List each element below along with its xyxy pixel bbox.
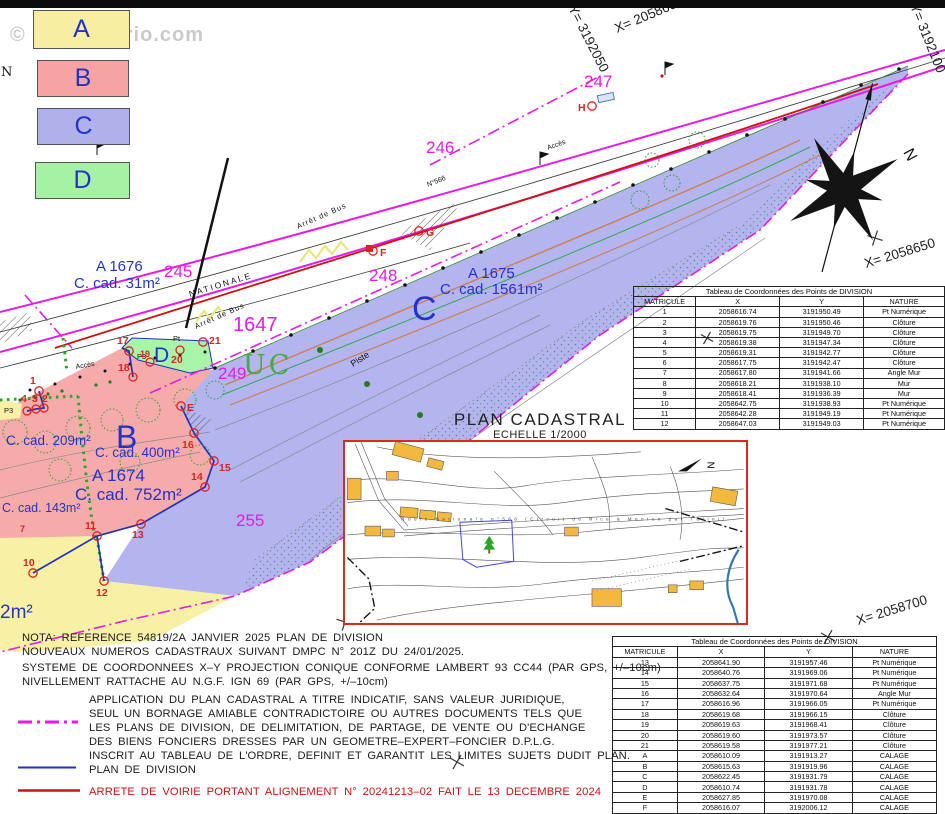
parcel-area: C. cad. 400m² <box>95 445 180 460</box>
table-cell: 2058642.75 <box>696 399 780 409</box>
table-cell: 2058610.74 <box>677 782 764 792</box>
table-cell: 2058610.09 <box>677 751 764 761</box>
table-cell: CALAGE <box>852 772 936 782</box>
table-cell: 8 <box>634 378 696 388</box>
svg-text:15: 15 <box>219 462 231 474</box>
parcel-area: C. cad. 752m² <box>75 485 182 504</box>
parcel-area: C. cad. 209m² <box>6 433 91 448</box>
table-cell: 3191947.34 <box>780 337 864 347</box>
table-cell: 3191949.70 <box>780 327 864 337</box>
svg-text:18: 18 <box>118 362 130 374</box>
table-cell: B <box>613 761 678 771</box>
lot-number: 247 <box>584 72 612 91</box>
table-cell: Mur <box>864 378 945 388</box>
note-app3: LES PLANS DE DIVISION, DE DELIMITATION, … <box>89 722 585 734</box>
lot-number: 248 <box>369 266 397 285</box>
table-row: 112058642.283191949.19Pt Numérique <box>634 409 945 419</box>
table-cell: Clôture <box>864 358 945 368</box>
table-cell: 3191969.06 <box>765 668 852 678</box>
table-cell: 2058637.75 <box>677 678 764 688</box>
p3-label: P3 <box>4 406 13 415</box>
table-cell: C <box>613 772 678 782</box>
table-cell: 16 <box>613 688 678 698</box>
table-row: 122058647.033191949.03Pt Numérique <box>634 419 945 429</box>
svg-text:20: 20 <box>171 354 183 366</box>
table-row: 22058619.763191950.46Clôture <box>634 317 945 327</box>
table-cell: Mur <box>864 388 945 398</box>
lot-number: 246 <box>426 138 454 157</box>
table-cell: 2058622.45 <box>677 772 764 782</box>
svg-text:14: 14 <box>191 471 203 483</box>
note-arrete: ARRETE DE VOIRIE PORTANT ALIGNEMENT N° 2… <box>89 786 601 798</box>
column-header: MATRICULE <box>613 647 678 657</box>
table-cell: 3191970.64 <box>765 688 852 698</box>
table-cell: 2058619.58 <box>677 740 764 750</box>
table-cell: CALAGE <box>852 751 936 761</box>
legend-label-b: B <box>75 64 92 93</box>
svg-text:E: E <box>187 402 194 414</box>
table-cell: 3191971.68 <box>765 678 852 688</box>
table-row: 72058617.803191941.66Angle Mur <box>634 368 945 378</box>
pt-label: Pt <box>173 334 181 343</box>
table-cell: 3191936.39 <box>780 388 864 398</box>
division-line-sample <box>18 765 76 770</box>
table-cell: Clôture <box>852 709 936 719</box>
parcel-area: C. cad. 143m² <box>2 501 81 515</box>
table-cell: CALAGE <box>852 803 936 813</box>
svg-text:4: 4 <box>21 393 27 405</box>
table-cell: 3191931.78 <box>765 782 852 792</box>
grid-label: Y= 3192050 <box>565 3 612 75</box>
table-cell: 7 <box>634 368 696 378</box>
parcel-area: 2m² <box>0 602 33 623</box>
lot-number: 255 <box>236 511 264 530</box>
table-cell: 6 <box>634 358 696 368</box>
table-cell: Pt Numérique <box>864 399 945 409</box>
table-cell: 3191970.08 <box>765 792 852 802</box>
note-app4: DES BIENS FONCIERS DRESSES PAR UN GEOMET… <box>89 736 555 748</box>
note-sys2: NIVELLEMENT RATTACHE AU N.G.F. IGN 69 (P… <box>22 676 388 688</box>
svg-text:19: 19 <box>140 349 150 359</box>
svg-text:2: 2 <box>42 393 48 405</box>
parcel-name: A 1675 <box>468 265 515 282</box>
note-division: PLAN DE DIVISION <box>89 764 196 776</box>
table-cell: Clôture <box>864 337 945 347</box>
table-cell: 4 <box>634 337 696 347</box>
table-row: 132058641.903191957.46Pt Numérique <box>613 657 937 667</box>
column-header: X <box>677 647 764 657</box>
table-title-row: Tableau de Coordonnées des Points de DIV… <box>634 287 945 297</box>
top-black-bar <box>0 0 945 8</box>
table-cell: 2058617.80 <box>696 368 780 378</box>
parcel-area: C. cad. 1561m² <box>440 281 543 298</box>
svg-text:11: 11 <box>85 520 96 532</box>
table-cell: 2058640.76 <box>677 668 764 678</box>
table-row: 32058619.753191949.70Clôture <box>634 327 945 337</box>
svg-text:3: 3 <box>32 393 38 405</box>
table-cell: 3191942.77 <box>780 348 864 358</box>
table-cell: 3191968.41 <box>765 720 852 730</box>
column-header: X <box>696 297 780 307</box>
table-cell: 18 <box>613 709 678 719</box>
table-cell: 2058618.41 <box>696 388 780 398</box>
table-cell: 2058619.63 <box>677 720 764 730</box>
inset-tree <box>483 536 495 554</box>
table-cell: 2058617.75 <box>696 358 780 368</box>
legend-swatch-d: D <box>35 162 130 199</box>
lot-number: 245 <box>164 262 192 281</box>
parcel-letter-d: D <box>154 344 169 367</box>
table-cell: 3191949.19 <box>780 409 864 419</box>
svg-text:16: 16 <box>182 439 194 451</box>
svg-text:F: F <box>380 247 387 259</box>
inset-title: PLAN CADASTRAL <box>420 410 660 430</box>
table-row: 52058619.313191942.77Clôture <box>634 348 945 358</box>
table-title-row: Tableau de Coordonnées des Points de DIV… <box>613 637 937 647</box>
note-nota2: NOUVEAUX NUMEROS CADASTRAUX SUIVANT DMPC… <box>22 646 464 658</box>
table-row: A2058610.093191913.27CALAGE <box>613 751 937 761</box>
column-header: Y <box>765 647 852 657</box>
table-cell: 19 <box>613 720 678 730</box>
table-cell: 2058615.63 <box>677 761 764 771</box>
table-cell: 3 <box>634 327 696 337</box>
edge-n-fragment: N <box>1 65 12 80</box>
table-cell: 10 <box>634 399 696 409</box>
table-cell: Clôture <box>852 740 936 750</box>
column-header: Y <box>780 297 864 307</box>
note-app2: SEUL UN BORNAGE AMIABLE CONTRADICTOIRE O… <box>89 708 582 720</box>
table-title: Tableau de Coordonnées des Points de DIV… <box>634 287 945 297</box>
table-cell: Pt Numérique <box>864 307 945 317</box>
svg-text:1: 1 <box>30 375 36 387</box>
table-cell: Pt Numérique <box>852 657 936 667</box>
table-row: 92058618.413191936.39Mur <box>634 388 945 398</box>
point-marker: 7 <box>20 524 25 534</box>
road-label-n566: N°566 <box>426 174 447 189</box>
svg-text:10: 10 <box>23 557 35 569</box>
table-cell: 2058616.07 <box>677 803 764 813</box>
division-table-1: Tableau de Coordonnées des Points de DIV… <box>633 286 945 430</box>
leader-line-a1676 <box>186 158 228 328</box>
table-cell: Clôture <box>864 317 945 327</box>
table-cell: 17 <box>613 699 678 709</box>
note-app5: INSCRIT AU TABLEAU DE L'ORDRE, DEFINIT E… <box>89 750 630 762</box>
table-cell: 3191966.05 <box>765 699 852 709</box>
parcel-name: A 1676 <box>96 258 143 275</box>
table-cell: 3191950.46 <box>780 317 864 327</box>
table-cell: 2058618.21 <box>696 378 780 388</box>
bus-shelter <box>597 92 614 102</box>
table-row: 202058619.603191973.57Clôture <box>613 730 937 740</box>
svg-text:G: G <box>426 227 434 239</box>
column-header: NATURE <box>864 297 945 307</box>
table-cell: 2058619.38 <box>696 337 780 347</box>
note-nota1: NOTA: REFERENCE 54819/2A JANVIER 2025 PL… <box>22 632 383 644</box>
table-cell: Pt Numérique <box>864 409 945 419</box>
grid-label: X= 2058700 <box>854 592 928 628</box>
table-cell: 3191966.15 <box>765 709 852 719</box>
table-row: 102058642.753191938.93Pt Numérique <box>634 399 945 409</box>
table-row: B2058615.633191919.96CALAGE <box>613 761 937 771</box>
table-row: 82058618.213191938.10Mur <box>634 378 945 388</box>
column-header: NATURE <box>852 647 936 657</box>
svg-text:7: 7 <box>20 524 25 534</box>
lot-number: 1647 <box>233 314 278 336</box>
inset-map: N Route Nationale n°566 (Circuit de Nice… <box>343 440 748 625</box>
table-cell: 2058642.28 <box>696 409 780 419</box>
table-cell: 3191957.46 <box>765 657 852 667</box>
table-cell: Clôture <box>864 327 945 337</box>
table-row: 62058617.753191942.47Clôture <box>634 358 945 368</box>
svg-text:17: 17 <box>117 335 129 347</box>
svg-text:12: 12 <box>96 587 108 599</box>
table-row: 42058619.383191947.34Clôture <box>634 337 945 347</box>
table-cell: CALAGE <box>852 792 936 802</box>
table-cell: 3191977.21 <box>765 740 852 750</box>
table-row: E2058627.853191970.08CALAGE <box>613 792 937 802</box>
table-cell: 2058632.64 <box>677 688 764 698</box>
table-cell: 3191941.66 <box>780 368 864 378</box>
table-cell: Pt Numérique <box>852 678 936 688</box>
zone-label-uc: UC <box>243 350 292 381</box>
table-cell: 3191950.49 <box>780 307 864 317</box>
inset-stream <box>727 550 738 623</box>
table-row: 142058640.763191969.06Pt Numérique <box>613 668 937 678</box>
dashdot-line-sample <box>18 719 78 725</box>
table-cell: 2058616.74 <box>696 307 780 317</box>
alignment-line-sample <box>18 788 80 793</box>
table-row: 162058632.643191970.64Angle Mur <box>613 688 937 698</box>
table-cell: Pt Numérique <box>852 699 936 709</box>
table-row: D2058610.743191931.78CALAGE <box>613 782 937 792</box>
table-cell: Pt Numérique <box>852 668 936 678</box>
table-cell: Clôture <box>864 348 945 358</box>
table-cell: 5 <box>634 348 696 358</box>
table-cell: CALAGE <box>852 761 936 771</box>
road-label-arret: Arrêt de Bus <box>295 201 348 231</box>
coordinates-table: Tableau de Coordonnées des Points de DIV… <box>633 286 945 430</box>
table-cell: 2058619.31 <box>696 348 780 358</box>
svg-text:21: 21 <box>209 335 221 347</box>
table-cell: 2058616.96 <box>677 699 764 709</box>
table-cell: E <box>613 792 678 802</box>
table-cell: F <box>613 803 678 813</box>
legend-swatch-b: B <box>37 60 129 97</box>
table-cell: Clôture <box>852 720 936 730</box>
table-cell: Clôture <box>852 730 936 740</box>
table-header-row: MATRICULEXYNATURE <box>634 297 945 307</box>
table-cell: Angle Mur <box>852 688 936 698</box>
table-cell: 2058647.03 <box>696 419 780 429</box>
inset-drawing: N Route Nationale n°566 (Circuit de Nice… <box>345 442 746 623</box>
table-cell: 3191919.96 <box>765 761 852 771</box>
table-cell: 3192006.12 <box>765 803 852 813</box>
parcel-letter-c: C <box>412 290 437 328</box>
table-cell: 1 <box>634 307 696 317</box>
note-app1: APPLICATION DU PLAN CADASTRAL A TITRE IN… <box>89 694 565 706</box>
svg-text:H: H <box>578 102 586 114</box>
table-cell: 2058627.85 <box>677 792 764 802</box>
table-cell: 3191938.10 <box>780 378 864 388</box>
svg-text:13: 13 <box>132 529 144 541</box>
table-cell: Angle Mur <box>864 368 945 378</box>
parcel-letter-b: B <box>116 419 137 455</box>
hatch-area <box>398 200 462 250</box>
table-cell: 2058619.60 <box>677 730 764 740</box>
compass-north-label: N <box>899 146 919 164</box>
table-row: C2058622.453191931.79CALAGE <box>613 772 937 782</box>
table-cell: 9 <box>634 388 696 398</box>
table-row: 212058619.583191977.21Clôture <box>613 740 937 750</box>
column-header: MATRICULE <box>634 297 696 307</box>
table-title: Tableau de Coordonnées des Points de DIV… <box>613 637 937 647</box>
table-header-row: MATRICULEXYNATURE <box>613 647 937 657</box>
table-cell: 3191942.47 <box>780 358 864 368</box>
table-cell: 3191938.93 <box>780 399 864 409</box>
table-cell: 15 <box>613 678 678 688</box>
table-cell: 2058641.90 <box>677 657 764 667</box>
table-cell: 20 <box>613 730 678 740</box>
legend-swatch-c: C <box>37 108 130 145</box>
table-cell: 2058619.75 <box>696 327 780 337</box>
table-cell: 3191931.79 <box>765 772 852 782</box>
table-row: 152058637.753191971.68Pt Numérique <box>613 678 937 688</box>
road-label-acces: Accès <box>546 139 567 152</box>
table-cell: Pt Numérique <box>864 419 945 429</box>
parcel-name: A 1674 <box>92 466 145 485</box>
legend-swatch-a: A <box>33 10 130 49</box>
table-row: 182058619.683191966.15Clôture <box>613 709 937 719</box>
table-cell: 3191913.27 <box>765 751 852 761</box>
table-row: 12058616.743191950.49Pt Numérique <box>634 307 945 317</box>
point-marker: H <box>578 102 596 114</box>
inset-north-arrow: N <box>678 459 715 472</box>
table-cell: 2058619.68 <box>677 709 764 719</box>
note-sys1: SYSTEME DE COORDONNEES X–Y PROJECTION CO… <box>22 662 661 674</box>
table-row: 192058619.633191968.41Clôture <box>613 720 937 730</box>
legend-label-d: D <box>73 166 91 195</box>
table-cell: CALAGE <box>852 782 936 792</box>
table-cell: 2058619.76 <box>696 317 780 327</box>
table-cell: D <box>613 782 678 792</box>
table-cell: 3191973.57 <box>765 730 852 740</box>
parcel-area: C. cad. 31m² <box>74 275 160 292</box>
table-row: F2058616.073192006.12CALAGE <box>613 803 937 813</box>
table-cell: 2 <box>634 317 696 327</box>
table-cell: 3191949.03 <box>780 419 864 429</box>
table-row: 172058616.963191966.05Pt Numérique <box>613 699 937 709</box>
legend-label-a: A <box>73 15 90 44</box>
inset-north-label: N <box>704 462 715 469</box>
legend-label-c: C <box>74 112 92 141</box>
